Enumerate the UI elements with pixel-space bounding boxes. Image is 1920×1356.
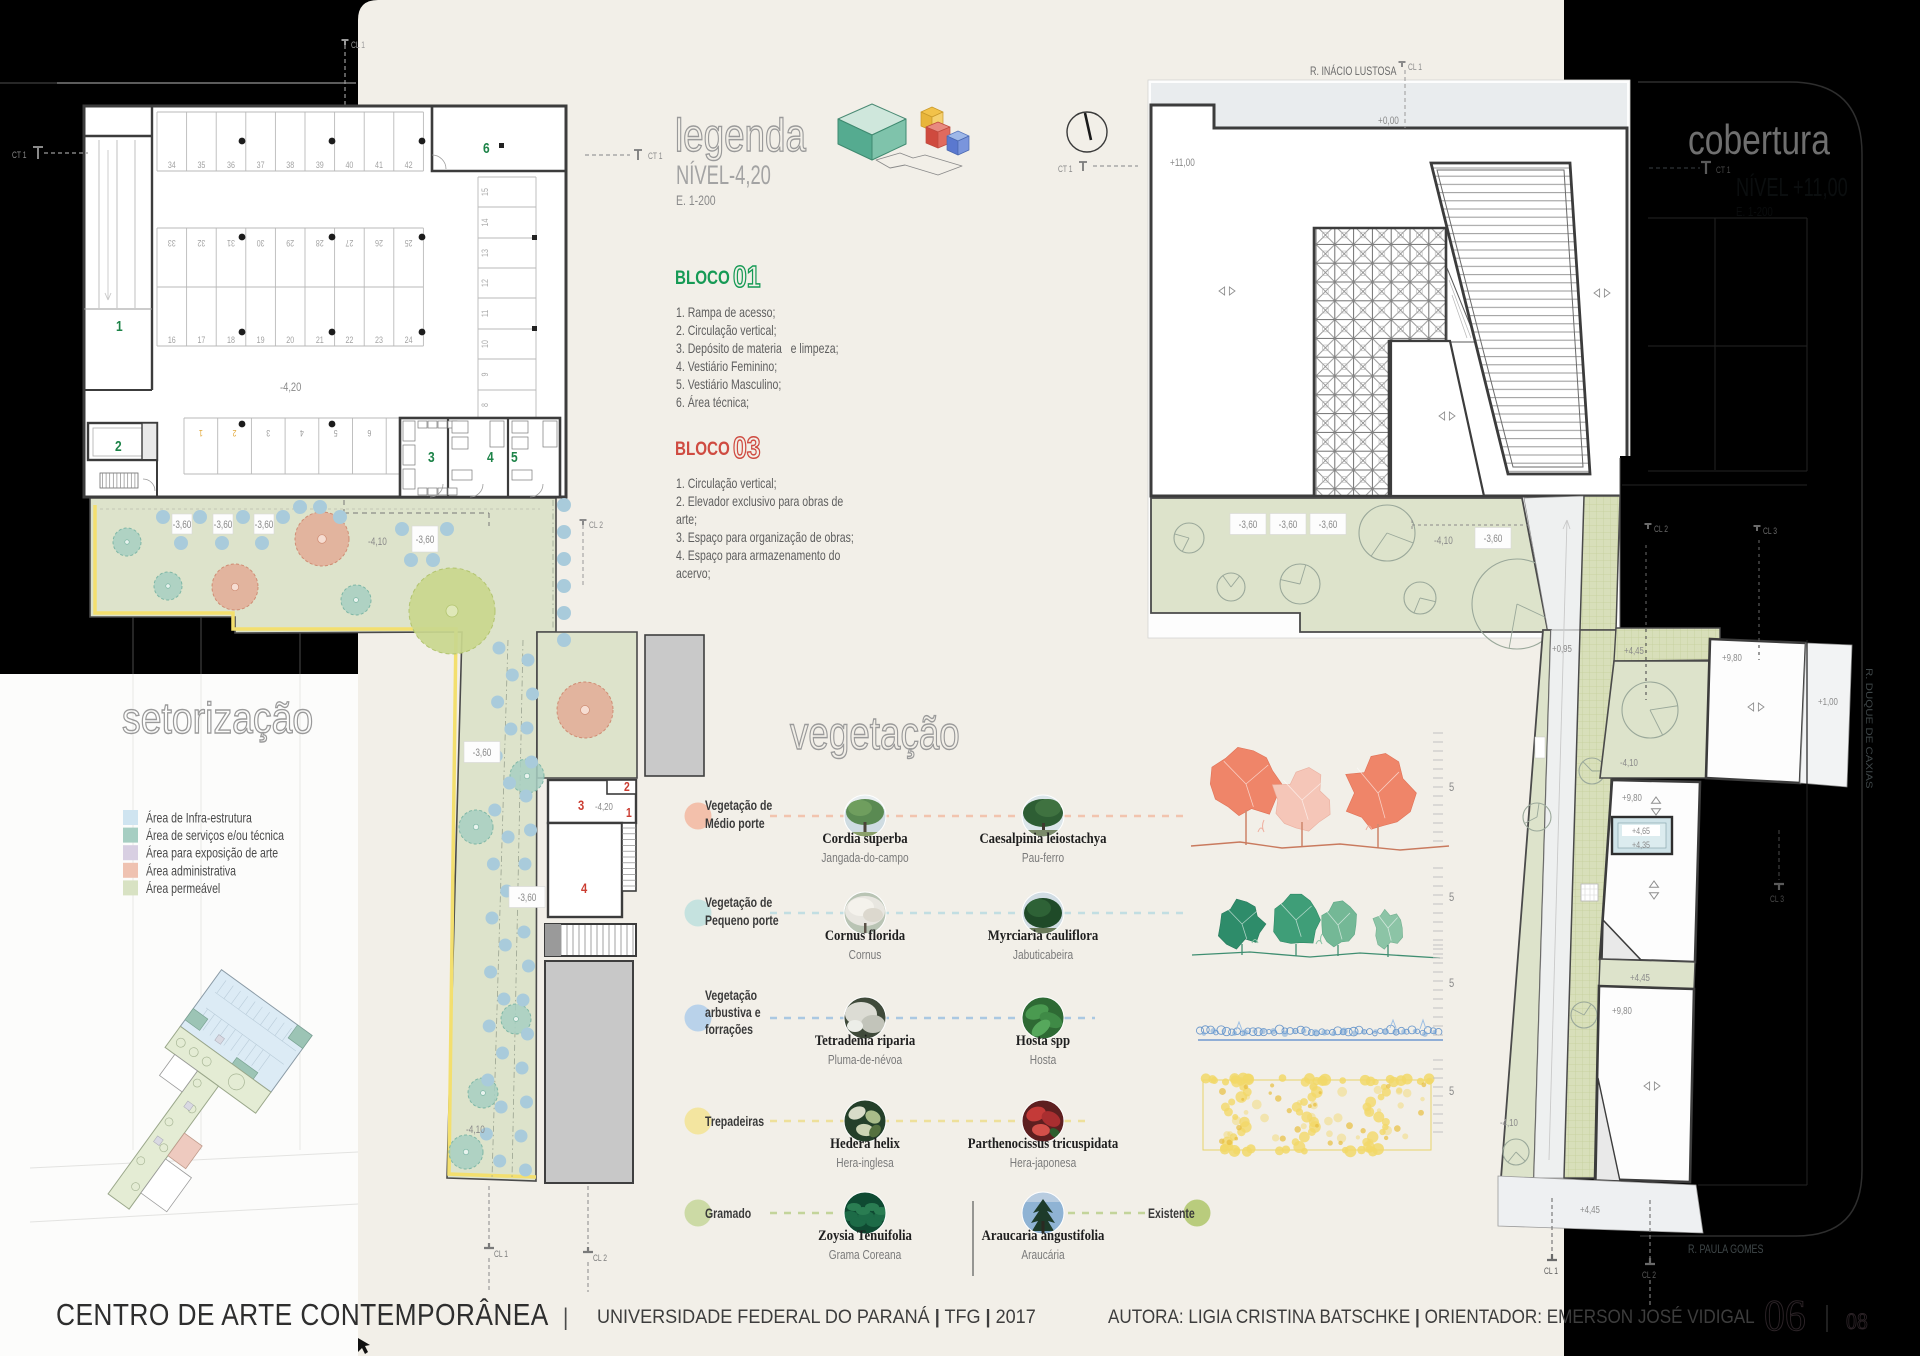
svg-text:Trepadeiras: Trepadeiras xyxy=(705,1114,764,1130)
svg-text:38: 38 xyxy=(286,159,294,170)
svg-text:forrações: forrações xyxy=(705,1022,753,1038)
svg-text:legenda: legenda xyxy=(675,109,807,161)
svg-text:R. DUQUE DE CAXIAS: R. DUQUE DE CAXIAS xyxy=(1863,668,1873,789)
svg-text:Hera-inglesa: Hera-inglesa xyxy=(836,1156,894,1170)
svg-text:Vegetação de: Vegetação de xyxy=(705,895,772,911)
svg-text:Zoysia Tenuifolia: Zoysia Tenuifolia xyxy=(818,1228,912,1244)
svg-text:5: 5 xyxy=(511,449,518,466)
svg-text:1: 1 xyxy=(199,428,203,439)
svg-text:Pluma-de-névoa: Pluma-de-névoa xyxy=(828,1053,903,1067)
svg-text:Vegetação: Vegetação xyxy=(705,988,757,1004)
svg-text:R. PAULA GOMES: R. PAULA GOMES xyxy=(1688,1244,1764,1256)
svg-text:34: 34 xyxy=(168,159,176,170)
svg-text:4: 4 xyxy=(300,428,304,439)
svg-text:15: 15 xyxy=(479,188,490,196)
svg-text:Hosta: Hosta xyxy=(1030,1053,1057,1067)
svg-text:5: 5 xyxy=(1449,891,1454,904)
svg-text:32: 32 xyxy=(197,238,205,249)
svg-text:+11,00: +11,00 xyxy=(1170,157,1195,169)
svg-text:Araucária: Araucária xyxy=(1021,1248,1065,1262)
svg-text:setorização: setorização xyxy=(122,693,313,743)
svg-text:27: 27 xyxy=(345,238,353,249)
svg-text:42: 42 xyxy=(405,159,413,170)
svg-text:arte;: arte; xyxy=(676,512,697,528)
svg-text:39: 39 xyxy=(316,159,324,170)
svg-text:-4,10: -4,10 xyxy=(1500,1117,1518,1128)
svg-text:Hera-japonesa: Hera-japonesa xyxy=(1010,1156,1077,1170)
svg-text:1: 1 xyxy=(626,806,632,820)
svg-text:3: 3 xyxy=(428,449,435,466)
svg-text:Tetradenia riparia: Tetradenia riparia xyxy=(815,1033,915,1049)
svg-text:36: 36 xyxy=(227,159,235,170)
svg-text:01: 01 xyxy=(733,259,761,293)
svg-text:Myrciaria cauliflora: Myrciaria cauliflora xyxy=(988,928,1099,944)
svg-text:+0,00: +0,00 xyxy=(1378,115,1399,127)
svg-text:3: 3 xyxy=(578,798,584,813)
svg-text:16: 16 xyxy=(168,334,176,345)
svg-text:Vegetação de: Vegetação de xyxy=(705,798,772,814)
svg-text:5: 5 xyxy=(1449,781,1454,794)
svg-text:18: 18 xyxy=(227,334,235,345)
svg-text:22: 22 xyxy=(345,334,353,345)
svg-text:41: 41 xyxy=(375,159,383,170)
svg-text:35: 35 xyxy=(197,159,205,170)
svg-text:acervo;: acervo; xyxy=(676,566,711,582)
svg-text:+4,45: +4,45 xyxy=(1630,972,1650,983)
svg-text:6: 6 xyxy=(483,140,490,157)
svg-text:cobertura: cobertura xyxy=(1688,118,1831,164)
svg-text:19: 19 xyxy=(257,334,265,345)
svg-text:Área para exposição de arte: Área para exposição de arte xyxy=(146,844,278,861)
svg-text:Cornus: Cornus xyxy=(849,948,882,962)
svg-text:Pau-ferro: Pau-ferro xyxy=(1022,851,1064,865)
svg-text:-3,60: -3,60 xyxy=(1239,519,1258,531)
svg-text:Jabuticabeira: Jabuticabeira xyxy=(1013,948,1074,962)
svg-text:+9,80: +9,80 xyxy=(1612,1005,1632,1016)
svg-text:33: 33 xyxy=(168,238,176,249)
svg-text:Hosta spp: Hosta spp xyxy=(1016,1033,1070,1049)
svg-text:-4,10: -4,10 xyxy=(466,1124,485,1136)
svg-text:Hedera helix: Hedera helix xyxy=(830,1136,900,1152)
svg-text:vegetação: vegetação xyxy=(790,707,960,759)
svg-text:Parthenocissus tricuspidata: Parthenocissus tricuspidata xyxy=(968,1136,1118,1152)
svg-text:4. Vestiário Feminino;: 4. Vestiário Feminino; xyxy=(676,359,777,375)
svg-text:NÍVEL-4,20: NÍVEL-4,20 xyxy=(676,159,771,189)
svg-text:5. Vestiário Masculino;: 5. Vestiário Masculino; xyxy=(676,377,781,393)
svg-text:arbustiva e: arbustiva e xyxy=(705,1005,761,1021)
svg-text:31: 31 xyxy=(227,238,235,249)
svg-text:|: | xyxy=(563,1303,568,1330)
svg-text:+1,00: +1,00 xyxy=(1818,696,1838,707)
svg-text:29: 29 xyxy=(286,238,294,249)
svg-text:3. Espaço para organização de: 3. Espaço para organização de obras; xyxy=(676,530,854,546)
svg-text:CT 1: CT 1 xyxy=(648,151,663,161)
svg-text:BLOCO: BLOCO xyxy=(675,266,730,288)
svg-text:CL 1: CL 1 xyxy=(1408,62,1422,72)
svg-text:Cornus florida: Cornus florida xyxy=(825,928,905,944)
svg-text:2: 2 xyxy=(624,780,630,794)
svg-text:AUTORA: LIGIA CRISTINA BATSCHK: AUTORA: LIGIA CRISTINA BATSCHKE | ORIENT… xyxy=(1108,1306,1755,1327)
svg-text:30: 30 xyxy=(256,238,264,249)
svg-text:+4,35: +4,35 xyxy=(1632,839,1650,850)
svg-text:-3,60: -3,60 xyxy=(173,519,192,531)
svg-text:3. Depósito de materia e lim: 3. Depósito de materia e limpeza; xyxy=(676,341,839,357)
svg-text:14: 14 xyxy=(479,218,490,226)
svg-text:+4,45: +4,45 xyxy=(1624,645,1644,656)
svg-text:2: 2 xyxy=(115,438,122,455)
svg-text:-3,60: -3,60 xyxy=(416,534,435,546)
svg-text:-3,60: -3,60 xyxy=(518,892,537,904)
svg-text:24: 24 xyxy=(405,334,413,345)
svg-text:28: 28 xyxy=(316,238,324,249)
svg-text:Área de serviços e/ou técnica: Área de serviços e/ou técnica xyxy=(146,827,284,844)
svg-text:1. Circulação vertical;: 1. Circulação vertical; xyxy=(676,476,777,492)
svg-text:UNIVERSIDADE FEDERAL DO PARANÁ: UNIVERSIDADE FEDERAL DO PARANÁ | TFG | 2… xyxy=(597,1306,1036,1328)
svg-text:1. Rampa de acesso;: 1. Rampa de acesso; xyxy=(676,305,775,321)
svg-text:6. Área técnica;: 6. Área técnica; xyxy=(676,394,749,411)
svg-text:Cordia superba: Cordia superba xyxy=(822,831,907,847)
svg-text:-3,60: -3,60 xyxy=(255,519,274,531)
svg-text:Área administrativa: Área administrativa xyxy=(146,862,236,879)
svg-text:4. Espaço para armazenamento d: 4. Espaço para armazenamento do xyxy=(676,548,841,564)
svg-text:40: 40 xyxy=(345,159,353,170)
svg-text:Área permeável: Área permeável xyxy=(146,880,220,897)
svg-text:5: 5 xyxy=(1449,1085,1454,1098)
svg-text:Gramado: Gramado xyxy=(705,1206,751,1222)
svg-text:25: 25 xyxy=(404,238,412,249)
svg-text:6: 6 xyxy=(367,428,371,439)
svg-text:3: 3 xyxy=(266,428,270,439)
svg-text:5: 5 xyxy=(1449,977,1454,990)
svg-text:5: 5 xyxy=(333,428,337,439)
svg-text:8: 8 xyxy=(479,403,490,407)
svg-text:-4,10: -4,10 xyxy=(1434,535,1453,547)
svg-text:CL 1: CL 1 xyxy=(351,40,365,50)
svg-text:Jangada-do-campo: Jangada-do-campo xyxy=(821,851,908,865)
svg-text:2. Elevador exclusivo para obr: 2. Elevador exclusivo para obras de xyxy=(676,494,843,510)
svg-text:-4,20: -4,20 xyxy=(595,801,613,812)
svg-text:-4,20: -4,20 xyxy=(280,381,301,394)
svg-text:26: 26 xyxy=(375,238,383,249)
svg-text:08: 08 xyxy=(1846,1308,1868,1334)
svg-text:CENTRO DE ARTE CONTEMPORÂNEA: CENTRO DE ARTE CONTEMPORÂNEA xyxy=(56,1297,549,1333)
svg-text:-3,60: -3,60 xyxy=(1319,519,1338,531)
svg-text:4: 4 xyxy=(487,449,494,466)
svg-text:Área de Infra-estrutura: Área de Infra-estrutura xyxy=(146,809,252,826)
svg-text:-4,10: -4,10 xyxy=(368,536,387,548)
svg-text:12: 12 xyxy=(479,279,490,287)
svg-text:11: 11 xyxy=(479,310,490,318)
svg-text:+9,80: +9,80 xyxy=(1622,792,1642,803)
svg-text:-4,10: -4,10 xyxy=(1620,757,1638,768)
svg-text:Existente: Existente xyxy=(1148,1206,1195,1222)
svg-text:-3,60: -3,60 xyxy=(214,519,233,531)
svg-text:2. Circulação vertical;: 2. Circulação vertical; xyxy=(676,323,777,339)
svg-text:13: 13 xyxy=(479,249,490,257)
svg-text:Araucaria angustifolia: Araucaria angustifolia xyxy=(982,1228,1105,1244)
svg-text:BLOCO: BLOCO xyxy=(675,437,730,459)
svg-text:E. 1-200: E. 1-200 xyxy=(1736,206,1773,220)
svg-text:21: 21 xyxy=(316,334,324,345)
svg-text:CL 1: CL 1 xyxy=(1544,1266,1558,1276)
svg-text:CT 1: CT 1 xyxy=(1058,164,1073,174)
svg-text:Médio porte: Médio porte xyxy=(705,816,765,832)
svg-text:37: 37 xyxy=(257,159,265,170)
svg-text:1: 1 xyxy=(116,318,123,335)
svg-text:-3,60: -3,60 xyxy=(473,747,492,759)
svg-text:10: 10 xyxy=(479,340,490,348)
svg-text:E. 1-200: E. 1-200 xyxy=(676,193,716,209)
svg-text:-3,60: -3,60 xyxy=(1484,533,1503,545)
svg-text:+9,80: +9,80 xyxy=(1722,652,1742,663)
svg-text:06: 06 xyxy=(1764,1292,1806,1340)
svg-text:Caesalpinia leiostachya: Caesalpinia leiostachya xyxy=(979,831,1106,847)
svg-text:R. INÁCIO LUSTOSA: R. INÁCIO LUSTOSA xyxy=(1310,64,1397,78)
svg-text:-3,60: -3,60 xyxy=(1279,519,1298,531)
svg-text:+4,65: +4,65 xyxy=(1632,825,1650,836)
svg-text:CL 2: CL 2 xyxy=(589,520,603,530)
svg-text:Pequeno porte: Pequeno porte xyxy=(705,913,779,929)
svg-text:CL 2: CL 2 xyxy=(593,1253,607,1263)
svg-text:23: 23 xyxy=(375,334,383,345)
svg-text:+0,95: +0,95 xyxy=(1552,643,1572,654)
svg-text:NÍVEL +11,00: NÍVEL +11,00 xyxy=(1736,173,1848,202)
svg-text:2: 2 xyxy=(232,428,236,439)
svg-text:CL 1: CL 1 xyxy=(494,1249,508,1259)
svg-text:Grama Coreana: Grama Coreana xyxy=(829,1248,902,1262)
svg-text:20: 20 xyxy=(286,334,294,345)
svg-text:4: 4 xyxy=(581,881,587,896)
svg-text:CT 1: CT 1 xyxy=(1716,165,1731,175)
svg-text:CL 2: CL 2 xyxy=(1654,524,1668,534)
svg-text:9: 9 xyxy=(479,372,490,376)
svg-text:+4,45: +4,45 xyxy=(1580,1204,1600,1215)
svg-text:CL 2: CL 2 xyxy=(1642,1270,1656,1280)
svg-text:CL 3: CL 3 xyxy=(1770,894,1784,904)
svg-text:17: 17 xyxy=(197,334,205,345)
svg-text:03: 03 xyxy=(733,430,761,464)
svg-text:CL 3: CL 3 xyxy=(1763,526,1777,536)
svg-text:CT 1: CT 1 xyxy=(12,150,27,160)
